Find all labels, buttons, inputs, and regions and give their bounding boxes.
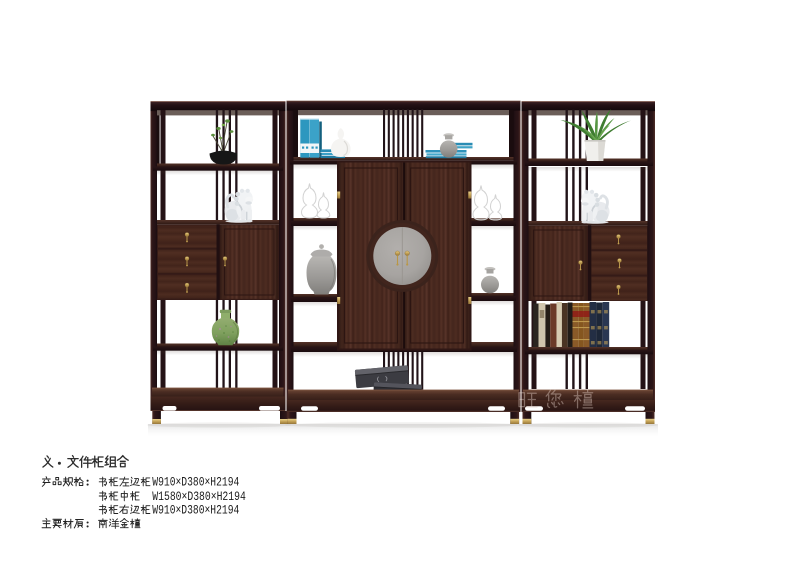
svg-text:W910×D380×H2194: W910×D380×H2194 [152, 503, 239, 517]
svg-text:W910×D380×H2194: W910×D380×H2194 [152, 476, 239, 490]
svg-text:W1580×D380×H2194: W1580×D380×H2194 [152, 490, 246, 504]
